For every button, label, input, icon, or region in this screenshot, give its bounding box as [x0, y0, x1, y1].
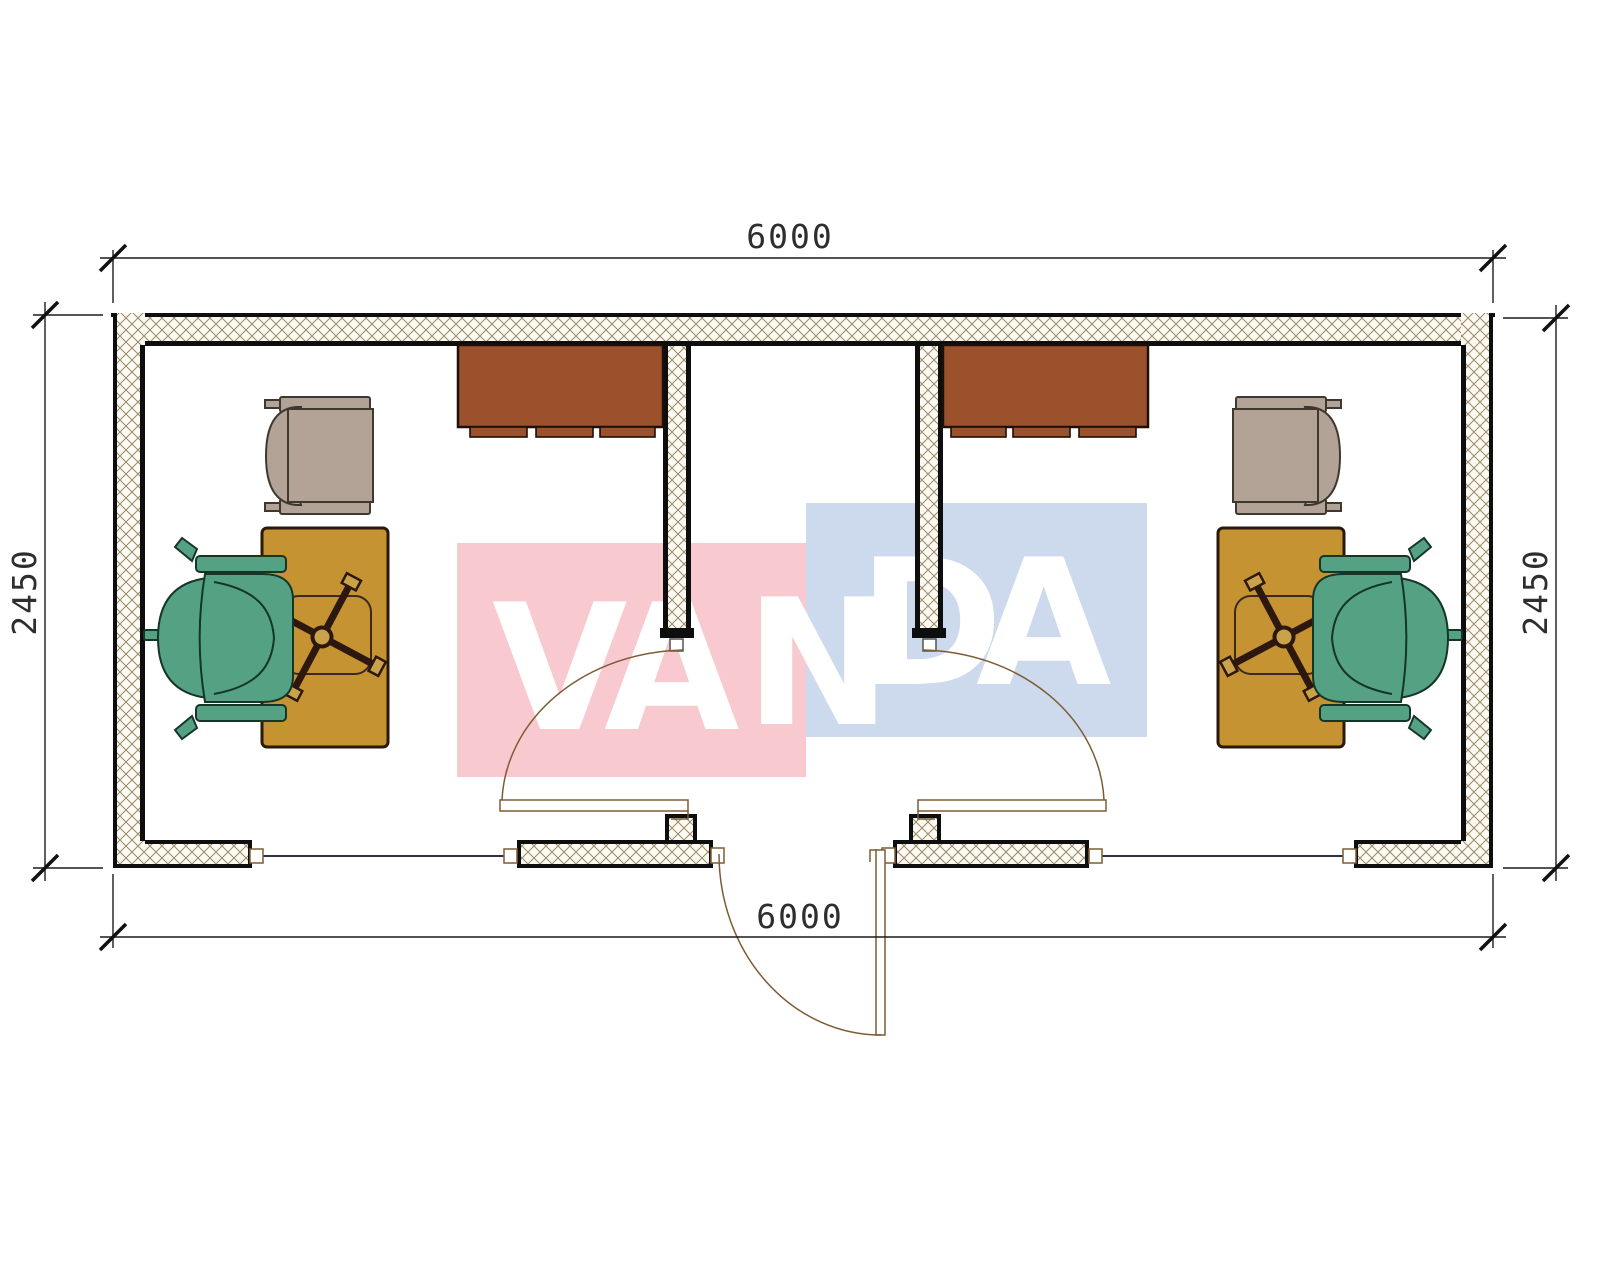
entrance-door-swing-arc: [719, 854, 881, 1035]
floor-plan-canvas: V A N D A 6000 6000 2450: [0, 0, 1600, 1280]
entrance-door-leaf: [876, 850, 885, 1035]
dimension-bottom: 6000: [100, 874, 1506, 950]
dimension-top-value: 6000: [746, 217, 833, 256]
watermark-letter: A: [976, 523, 1111, 726]
watermark: V A N D A: [457, 503, 1147, 777]
floor-plan-drawing: V A N D A 6000 6000 2450: [0, 0, 1600, 1280]
dimension-left: 2450: [5, 302, 103, 881]
dimension-right: 2450: [1503, 305, 1569, 881]
entrance-door: [719, 850, 885, 1035]
dimension-right-value: 2450: [1516, 548, 1555, 635]
dimension-top: 6000: [100, 217, 1506, 303]
dimension-bottom-value: 6000: [756, 897, 843, 936]
dimension-left-value: 2450: [5, 548, 44, 635]
